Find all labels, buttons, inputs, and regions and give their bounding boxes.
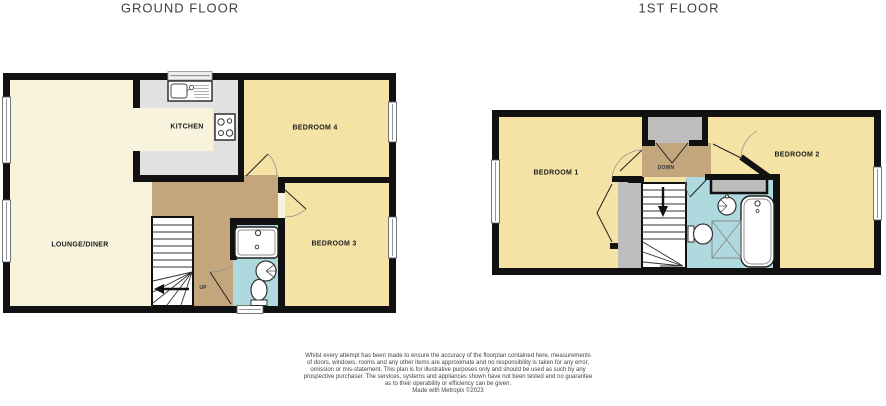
wardrobe-icon bbox=[618, 182, 642, 268]
disclaimer-line: prospective purchaser. The services, sys… bbox=[10, 374, 886, 381]
stairs-icon bbox=[152, 217, 193, 306]
window-icon bbox=[168, 72, 212, 81]
bath-icon bbox=[741, 196, 774, 267]
bath-icon bbox=[235, 227, 278, 258]
window-icon bbox=[389, 217, 397, 258]
basin-icon bbox=[256, 261, 277, 281]
disclaimer-line: of doors, windows, rooms and any other i… bbox=[10, 360, 886, 367]
ground-floor-title: GROUND FLOOR bbox=[121, 1, 239, 16]
landing-closet bbox=[648, 117, 702, 143]
window-icon bbox=[3, 200, 11, 262]
window-icon bbox=[237, 306, 263, 314]
first-floor-title: 1ST FLOOR bbox=[638, 1, 719, 16]
disclaimer-text: Whilst every attempt has been made to en… bbox=[10, 353, 886, 396]
lounge-diner-label: LOUNGE/DINER bbox=[51, 242, 108, 249]
disclaimer-line: Whilst every attempt has been made to en… bbox=[10, 353, 886, 360]
first-floor-plan bbox=[492, 110, 882, 275]
bedroom4-label: BEDROOM 4 bbox=[292, 125, 337, 132]
window-icon bbox=[3, 97, 11, 163]
window-icon bbox=[389, 102, 397, 142]
stairs-up-label: UP bbox=[199, 285, 206, 291]
hob-icon bbox=[215, 114, 235, 140]
floorplan-drawing bbox=[0, 0, 886, 406]
kitchen-sink-icon bbox=[168, 81, 212, 101]
metropix-credit: Made with Metropix ©2023 bbox=[10, 388, 886, 395]
cupboard-icon bbox=[711, 178, 767, 193]
window-icon bbox=[874, 167, 882, 220]
toilet-icon bbox=[688, 224, 713, 244]
window-icon bbox=[492, 160, 500, 223]
bedroom1-label: BEDROOM 1 bbox=[533, 170, 578, 177]
first-landing bbox=[642, 143, 711, 177]
bedroom2-label: BEDROOM 2 bbox=[774, 152, 819, 159]
disclaimer-line: omission or mis-statement. This plan is … bbox=[10, 367, 886, 374]
stairs-icon bbox=[642, 183, 686, 268]
ground-floor-plan bbox=[3, 72, 397, 314]
ground-floor-rooms bbox=[10, 80, 389, 306]
bedroom3-label: BEDROOM 3 bbox=[311, 241, 356, 248]
toilet-icon bbox=[251, 280, 267, 306]
stairs-down-label: DOWN bbox=[658, 165, 675, 171]
kitchen-label: KITCHEN bbox=[170, 124, 203, 131]
floorplan-page: GROUND FLOOR 1ST FLOOR LOUNGE/DINER KITC… bbox=[0, 0, 886, 406]
